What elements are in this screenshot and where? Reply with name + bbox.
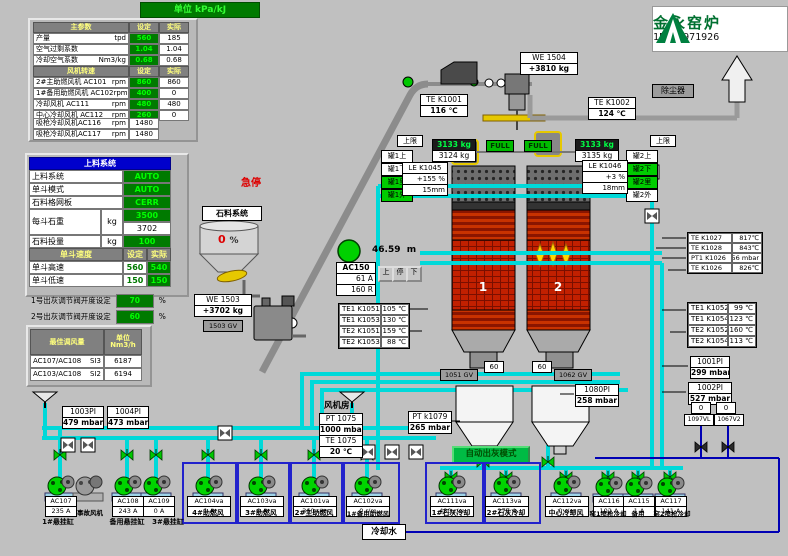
weigher-value: +3702 kg: [195, 305, 251, 316]
discharge-pos-right: 60: [532, 361, 552, 373]
right-te-group-1: TE K1027817℃ TE K1028843℃ PT1 K1026256 m…: [687, 232, 763, 274]
funnel-icon: [33, 392, 57, 408]
airflow-unit: 单位 Nm3/h: [104, 329, 142, 355]
fan-actual: 0: [159, 88, 189, 99]
speed-row: 单斗低速: [29, 274, 123, 287]
airflow-row: AC103/AC108SI2: [30, 368, 104, 381]
ash-valve-label: 1号出灰调节阀开度设定: [31, 297, 111, 305]
limit-label-right: 上限: [650, 135, 676, 147]
kiln-1-number: 1: [479, 280, 487, 294]
fan-setpoint[interactable]: 480: [129, 99, 159, 110]
fan-row: 1#备用助燃风机 AC102rpm: [33, 88, 129, 99]
left-te-group: TE1 K1051105 ℃ TE1 K1053130 ℃ TE2 K10511…: [338, 303, 410, 349]
te-k1002: TE K1002 124 ℃: [588, 97, 636, 120]
drive-speed: 160 R: [337, 284, 375, 295]
cooling-valve2-pos: 0: [716, 402, 736, 414]
pi-1003: 1003PI479 mbar: [62, 406, 104, 429]
stone-hopper: [200, 221, 260, 296]
conveyor-drive-box: AC150 61 A 160 R: [336, 262, 376, 296]
tank2-upper-label[interactable]: 罐2上: [626, 150, 658, 163]
pump-label: 1#备用助燃风: [337, 508, 399, 518]
pump-value-box: AC108243 A: [112, 496, 144, 517]
feed-row: 每斗石重: [29, 209, 101, 235]
fan-setpoint[interactable]: 860: [129, 77, 159, 88]
le-k1045: LE K1045 +155 % 15mm: [402, 162, 448, 196]
company-logo: 金永窑炉 15020971926: [652, 6, 788, 52]
speed-title: 单斗速度: [29, 248, 123, 261]
gun-fans-table: 吸枪冷却风机AC116rpm 1480 吸枪冷却风机AC117rpm 1480: [33, 118, 159, 140]
param-setpoint[interactable]: 560: [129, 33, 159, 44]
feed-row: 石料投量: [29, 235, 101, 248]
kiln-cross-pipes: [378, 186, 662, 263]
pump-label: 2#主助燃风: [284, 508, 344, 518]
param-setpoint[interactable]: 1.04: [129, 44, 159, 55]
fan-row: 2#主助燃风机 AC101rpm: [33, 77, 129, 88]
feed-mode[interactable]: AUTO: [123, 183, 171, 196]
pump-label: 2#石灰冷却: [476, 508, 536, 518]
speed-act: 150: [147, 274, 171, 287]
pump-label: 3#悬挂缸: [143, 517, 193, 527]
bucket-weight-set[interactable]: 3500: [123, 209, 171, 222]
col-act: 实际: [159, 22, 189, 33]
fan-actual: 860: [159, 77, 189, 88]
param-actual: 185: [159, 33, 189, 44]
pump-label: 窑2喷枪冷却: [644, 508, 700, 518]
unit-label: kg: [101, 209, 123, 235]
cooling-valve1-tag[interactable]: 1097VL: [684, 414, 714, 426]
fanroom-pt-te: PT 1075 1000 mbar TE 1075 20 ℃: [319, 413, 363, 458]
col-act: 实际: [159, 66, 189, 77]
feed-row: 单斗模式: [29, 183, 123, 196]
right-te-group-2: TE1 K105299 ℃ TE1 K1054123 ℃ TE2 K105216…: [687, 302, 757, 348]
pt-k1079: PT k1079265 mbar: [408, 411, 452, 434]
limit-label-left: 上限: [397, 135, 423, 147]
percent-sign: %: [159, 313, 166, 321]
gun-fan-row: 吸枪冷却风机AC117rpm: [33, 129, 129, 140]
pump-label: 3#助燃风: [231, 508, 291, 518]
conveyor-drive-indicator[interactable]: [338, 240, 360, 262]
fan-row: 冷却风机 AC111rpm: [33, 99, 129, 110]
full-indicator-right: FULL: [524, 140, 552, 152]
discharge-pos-left: 60: [484, 361, 504, 373]
col-set: 设定: [129, 22, 159, 33]
airflow-table: 最佳调风量 单位 Nm3/h AC107/AC108SI3 6187 AC103…: [30, 329, 142, 381]
kiln-2-number: 2: [554, 280, 562, 294]
emergency-stop-label[interactable]: 急停: [241, 174, 261, 189]
col-act: 实际: [147, 248, 171, 261]
fan-actual: 480: [159, 99, 189, 110]
pump-label: 1#悬挂缸: [28, 517, 88, 527]
pump-value-box: AC1090 A: [143, 496, 175, 517]
stone-system-label: 石料系统: [202, 206, 262, 221]
dust-collector-label[interactable]: 除尘器: [652, 84, 694, 98]
gate-1503gv[interactable]: 1503 GV: [203, 320, 243, 332]
tank2-inner-label[interactable]: 罐2里: [626, 176, 658, 189]
le-k1046: LE K1046 +3 % 18mm: [582, 160, 628, 194]
ash-valve-value[interactable]: 60: [116, 310, 154, 324]
drive-current: 61 A: [337, 273, 375, 284]
feed-mode[interactable]: AUTO: [123, 170, 171, 183]
unit-label: kg: [101, 235, 123, 248]
percent-sign: %: [159, 297, 166, 305]
ash-valve-setting-2: 2号出灰调节阀开度设定 60 %: [31, 310, 166, 324]
hopper-level-value: 0: [218, 233, 226, 246]
params-title: 主参数: [33, 22, 129, 33]
te-k1001: TE K1001 116 ℃: [420, 94, 468, 117]
param-setpoint[interactable]: 0.68: [129, 55, 159, 66]
feed-mode[interactable]: CERR: [123, 196, 171, 209]
col-set: 设定: [129, 66, 159, 77]
col-set: 设定: [123, 248, 147, 261]
hmi-screen: 1 2: [0, 0, 788, 556]
gun-fan-value: 1480: [129, 118, 159, 129]
weigher-1504: WE 1504 +3810 kg: [520, 52, 578, 75]
pump-label: 1#石灰冷却: [421, 508, 481, 518]
ash-valve-setting-1: 1号出灰调节阀开度设定 70 %: [31, 294, 166, 308]
skip-weight-right: 3133 kg 3135 kg: [575, 139, 619, 162]
tank2-lower-label[interactable]: 罐2下: [626, 163, 658, 176]
gun-fan-value: 1480: [129, 129, 159, 140]
skip-weight-left: 3133 kg 3124 kg: [432, 139, 476, 162]
pi-1004: 1004PI473 mbar: [107, 406, 149, 429]
param-actual: 1.04: [159, 44, 189, 55]
conveyor-height: 46.59 m: [372, 246, 416, 256]
param-row: 产量tpd: [33, 33, 129, 44]
speed-act: 540: [147, 261, 171, 274]
weigher-1503: WE 1503 +3702 kg: [194, 294, 252, 317]
gun-fan-row: 吸枪冷却风机AC116rpm: [33, 118, 129, 129]
param-row: 空气过剩系数: [33, 44, 129, 55]
unit-bar: 单位 kPa/kJ: [140, 2, 260, 18]
speed-set[interactable]: 560: [123, 261, 147, 274]
params-table: 主参数 设定 实际 产量tpd 560 185 空气过剩系数 1.04 1.04…: [33, 22, 189, 121]
tank2-outer-label[interactable]: 罐2外: [626, 189, 658, 202]
pi-1001: 1001PI299 mbar: [690, 356, 730, 379]
pump-label: 事故风机: [68, 507, 112, 517]
lime-silo-1: [456, 386, 513, 454]
param-row: 冷却空气系数Nm3/kg: [33, 55, 129, 66]
airflow-title: 最佳调风量: [30, 329, 104, 355]
fan-setpoint[interactable]: 400: [129, 88, 159, 99]
feed-row: 石料格网板: [29, 196, 123, 209]
full-indicator-left: FULL: [486, 140, 514, 152]
airflow-value: 6187: [104, 355, 142, 368]
hopper-level: 0 %: [218, 234, 239, 247]
feed-row: 上料系统: [29, 170, 123, 183]
gate-1062gv[interactable]: 1062 GV: [554, 369, 592, 381]
pi-1080: 1080PI258 mbar: [575, 384, 619, 407]
logo-triangle-icon: [653, 7, 693, 47]
weigher-tag: WE 1503: [195, 295, 251, 305]
speed-row: 单斗高速: [29, 261, 123, 274]
speed-set[interactable]: 150: [123, 274, 147, 287]
feed-panel: 上料系统 上料系统 AUTO 单斗模式 AUTO 石料格网板 CERR 每斗石重…: [29, 157, 171, 287]
pump-label: 4#助燃风: [178, 508, 238, 518]
cooling-water-label: 冷却水: [362, 524, 406, 540]
airflow-row: AC107/AC108SI3: [30, 355, 104, 368]
bucket-weight-act: 3702: [123, 222, 171, 235]
cooling-valve2-tag[interactable]: 1067V2: [714, 414, 744, 426]
feed-title: 上料系统: [29, 157, 171, 170]
cooling-valve1-pos: 0: [691, 402, 711, 414]
dust-collector-arrow-icon: [722, 56, 752, 102]
param-actual: 0.68: [159, 55, 189, 66]
hopper-level-unit: %: [230, 236, 239, 246]
gate-1051gv[interactable]: 1051 GV: [440, 369, 478, 381]
drive-tag: AC150: [337, 263, 375, 273]
fanroom-label: 风机房: [324, 402, 350, 411]
airflow-value: 6194: [104, 368, 142, 381]
hoist-down-button[interactable]: 下: [406, 266, 422, 282]
stone-dose[interactable]: 100: [123, 235, 171, 248]
ash-valve-value[interactable]: 70: [116, 294, 154, 308]
fan-actual: 0: [159, 110, 189, 121]
fan-title: 风机转速: [33, 66, 129, 77]
ash-valve-label: 2号出灰调节阀开度设定: [31, 313, 111, 321]
